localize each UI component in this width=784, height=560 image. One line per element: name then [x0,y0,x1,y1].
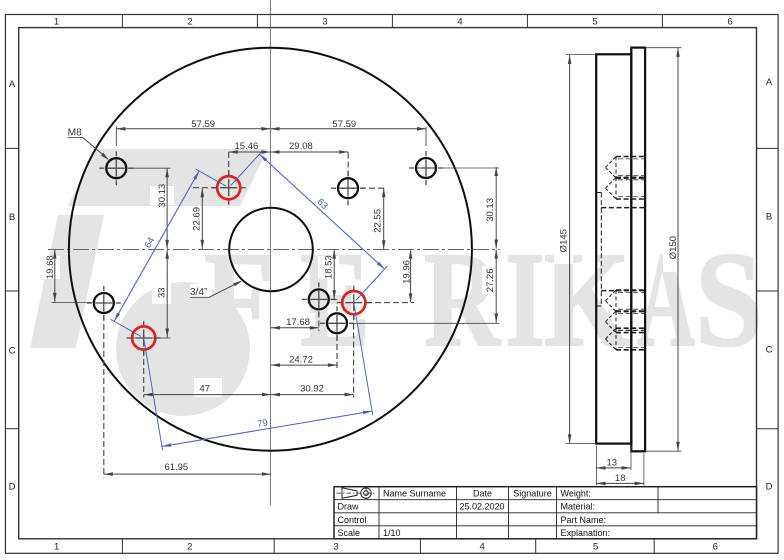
svg-text:3: 3 [322,17,327,28]
svg-text:Control: Control [338,515,367,525]
svg-text:3/4”: 3/4” [190,287,208,298]
svg-text:22.69: 22.69 [191,207,202,231]
svg-text:17.68: 17.68 [286,317,310,328]
svg-text:3: 3 [333,542,338,553]
svg-text:Signature: Signature [513,489,552,499]
svg-text:Weight:: Weight: [561,489,591,499]
svg-text:M8: M8 [68,127,82,138]
svg-text:79: 79 [256,418,268,431]
svg-text:22.55: 22.55 [372,209,383,233]
svg-text:24.72: 24.72 [289,354,313,365]
svg-text:47: 47 [199,383,210,394]
svg-text:Draw: Draw [338,502,360,512]
svg-text:C: C [766,344,773,355]
svg-text:5: 5 [593,542,598,553]
svg-text:18: 18 [615,473,626,484]
svg-text:4: 4 [457,17,462,28]
svg-text:5: 5 [592,17,597,28]
svg-text:30.92: 30.92 [300,383,324,394]
svg-text:15.46: 15.46 [235,141,259,152]
svg-text:F: F [204,225,274,375]
svg-text:Explanation:: Explanation: [561,528,611,538]
svg-text:I: I [505,225,545,375]
svg-text:1/10: 1/10 [383,528,401,538]
svg-text:D: D [9,482,16,493]
svg-text:25.02.2020: 25.02.2020 [460,502,505,512]
svg-text:4: 4 [480,542,485,553]
svg-text:19.96: 19.96 [401,260,412,284]
svg-text:30.13: 30.13 [485,198,496,222]
svg-text:Name Surname: Name Surname [383,489,446,499]
svg-text:13: 13 [607,458,618,469]
svg-text:30.13: 30.13 [157,184,168,208]
svg-text:B: B [9,212,15,223]
svg-text:Part Name:: Part Name: [561,515,607,525]
svg-text:Scale: Scale [338,528,361,538]
svg-text:C: C [9,345,16,356]
svg-text:57.59: 57.59 [332,119,356,130]
svg-text:6: 6 [727,17,732,28]
svg-text:D: D [766,481,773,492]
svg-text:19.68: 19.68 [45,255,56,279]
svg-text:1: 1 [54,17,59,28]
svg-text:2: 2 [187,542,192,553]
svg-text:A: A [766,77,773,88]
svg-text:Material:: Material: [561,502,596,512]
svg-text:1: 1 [54,542,59,553]
svg-text:S: S [695,225,763,375]
svg-text:57.59: 57.59 [191,119,215,130]
svg-text:18.53: 18.53 [324,255,335,279]
svg-text:B: B [766,211,772,222]
svg-text:Ø145: Ø145 [558,229,569,252]
svg-text:R: R [424,225,501,375]
svg-text:2: 2 [187,17,192,28]
svg-text:61.95: 61.95 [164,462,188,473]
svg-text:6: 6 [713,542,718,553]
svg-text:27.26: 27.26 [485,269,496,293]
svg-text:Ø150: Ø150 [668,236,679,259]
svg-text:29.08: 29.08 [289,141,313,152]
svg-text:Date: Date [473,489,492,499]
svg-text:33: 33 [156,287,167,298]
svg-text:A: A [9,79,16,90]
